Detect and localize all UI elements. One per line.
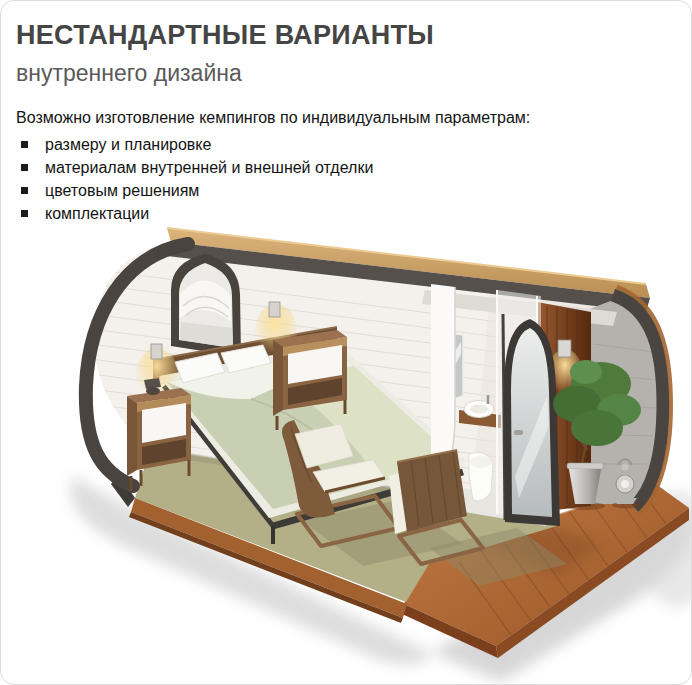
bullet-list: размеру и планировке материалам внутренн… xyxy=(16,136,675,222)
bullet-text: цветовым решениям xyxy=(45,182,199,199)
slide-page: НЕСТАНДАРТНЫЕ ВАРИАНТЫ внутреннего дизай… xyxy=(0,0,692,685)
list-item: размеру и планировке xyxy=(21,136,675,153)
bullet-square-icon xyxy=(21,187,28,194)
door-handle xyxy=(514,430,523,435)
bullet-text: размеру и планировке xyxy=(45,136,211,153)
wall-lamp-icon xyxy=(558,340,571,357)
sconce-icon xyxy=(269,302,280,317)
arched-window xyxy=(171,254,241,357)
bullet-square-icon xyxy=(21,141,28,148)
list-item: материалам внутренней и внешней отделки xyxy=(21,159,675,176)
bullet-square-icon xyxy=(21,164,28,171)
text-block: НЕСТАНДАРТНЫЕ ВАРИАНТЫ внутреннего дизай… xyxy=(1,1,691,222)
camping-pod-render xyxy=(1,214,692,684)
sconce-icon xyxy=(151,344,162,359)
page-subtitle: внутреннего дизайна xyxy=(16,61,675,86)
intro-text: Возможно изготовление кемпингов по индив… xyxy=(16,108,675,128)
bullet-text: материалам внутренней и внешней отделки xyxy=(45,159,373,176)
list-item: цветовым решениям xyxy=(21,182,675,199)
page-title: НЕСТАНДАРТНЫЕ ВАРИАНТЫ xyxy=(16,21,675,51)
